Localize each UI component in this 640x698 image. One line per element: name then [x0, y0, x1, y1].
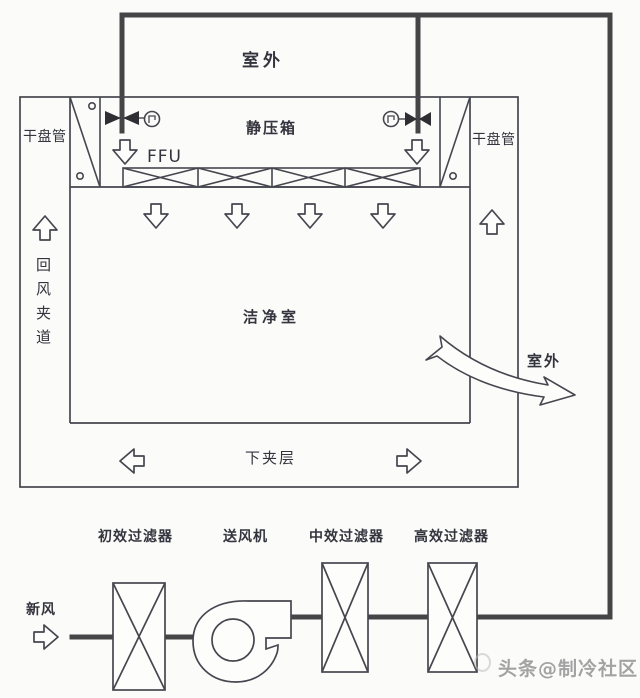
cleanroom-airflow-diagram: 室外 静压箱 FFU 干盘管 干盘管 回风夹道 洁净室 室外 下夹层 初效过滤器… [0, 0, 640, 698]
valve-actuator-icon [384, 112, 399, 127]
dry-coil-left-label: 干盘管 [23, 126, 67, 146]
ffu-label: FFU [147, 147, 182, 167]
ffu-filter-bank [123, 168, 420, 187]
static-pressure-box-label: 静压箱 [246, 117, 297, 138]
right-arrow-icon [397, 449, 421, 473]
hepa-filter-label: 高效过滤器 [414, 526, 489, 546]
hepa-filter-symbol [428, 563, 477, 672]
dry-coil-right-label: 干盘管 [472, 129, 516, 149]
dry-coil-right-symbol [440, 97, 470, 187]
down-arrow-icon [371, 204, 395, 228]
room-structure-lines [20, 97, 518, 487]
outdoor-top-label: 室外 [242, 46, 284, 71]
down-arrow-icon [225, 204, 249, 228]
medium-filter-label: 中效过滤器 [309, 526, 384, 546]
dry-coil-left-symbol [70, 97, 100, 187]
medium-filter-symbol [322, 563, 368, 672]
down-arrow-icon [113, 140, 137, 164]
fresh-air-arrow-icon [34, 625, 58, 649]
supply-fan-symbol [193, 601, 291, 682]
down-arrow-icon [144, 204, 168, 228]
outdoor-exit-label: 室外 [527, 350, 561, 371]
valve-actuator-icon [145, 112, 160, 127]
cleanroom-label: 洁净室 [243, 306, 300, 327]
watermark-logo-icon [474, 653, 491, 672]
right-duct-valve [384, 112, 432, 127]
down-arrow-icon [298, 204, 322, 228]
up-arrow-icon [480, 210, 504, 234]
return-air-passage-label: 回风夹道 [33, 257, 54, 397]
primary-filter-label: 初效过滤器 [98, 526, 173, 546]
left-duct-valve [105, 111, 160, 127]
diagram-linework [0, 0, 640, 698]
watermark-text: 头条@制冷社区 [498, 654, 638, 681]
up-arrow-icon [33, 216, 57, 240]
down-arrow-icon [405, 140, 429, 164]
outer-room-wall [20, 97, 518, 487]
primary-filter-symbol [113, 583, 165, 690]
lower-plenum-label: 下夹层 [245, 447, 296, 468]
fresh-air-label: 新风 [26, 599, 56, 619]
left-arrow-icon [120, 449, 144, 473]
supply-fan-label: 送风机 [223, 526, 268, 546]
